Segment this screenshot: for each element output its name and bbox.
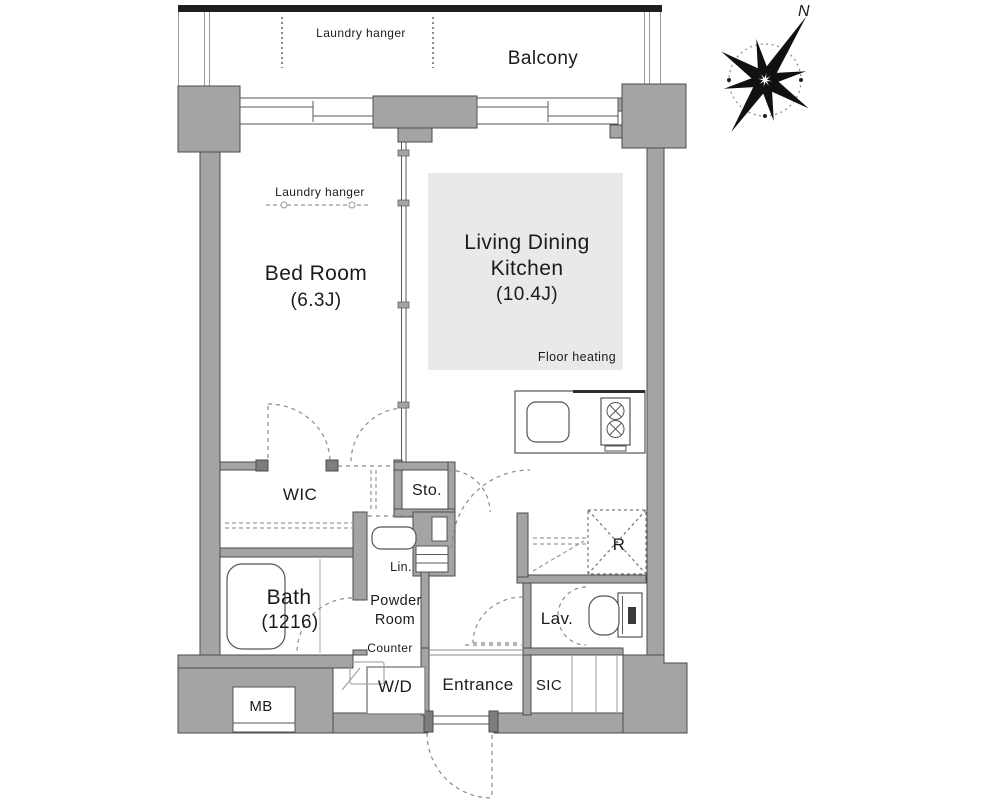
wall-segment bbox=[523, 575, 531, 715]
wall-segment bbox=[178, 655, 353, 668]
door-post bbox=[489, 711, 498, 732]
wall-segment bbox=[398, 128, 432, 142]
washbasin bbox=[372, 527, 416, 549]
linen-label: Lin. bbox=[390, 560, 412, 574]
compass-dot bbox=[799, 78, 803, 82]
ldk-size-label: (10.4J) bbox=[496, 284, 558, 305]
compass-dot bbox=[727, 78, 731, 82]
wall-segment bbox=[333, 713, 428, 733]
entrance-door-arc bbox=[427, 733, 492, 798]
wall-segment bbox=[610, 125, 622, 138]
wall-segment bbox=[421, 572, 429, 655]
wall-segment bbox=[494, 713, 623, 733]
labels: Laundry hanger Balcony Laundry hanger Be… bbox=[249, 26, 625, 715]
balcony-area bbox=[178, 5, 662, 96]
bath-label: Bath bbox=[267, 586, 312, 609]
wall-segment bbox=[353, 512, 367, 600]
kitchen-counter bbox=[515, 391, 645, 453]
bath-size-label: (1216) bbox=[261, 612, 318, 633]
wall-segment bbox=[517, 513, 528, 577]
powder-room-label-line2: Room bbox=[375, 612, 415, 628]
kitchen-sink bbox=[527, 402, 569, 442]
bedroom-ldk-partition bbox=[398, 142, 409, 462]
ldk-label-line2: Kitchen bbox=[491, 257, 564, 280]
door-post bbox=[256, 460, 268, 471]
bedroom-door-arc bbox=[351, 408, 405, 462]
floor-plan: N Laundry hanger Balcony Laundry hanger … bbox=[0, 0, 999, 801]
wall-segment bbox=[622, 84, 686, 148]
wall-segment bbox=[647, 148, 664, 655]
wall-segment bbox=[623, 655, 687, 733]
compass-north-label: N bbox=[798, 3, 810, 20]
bedroom-label: Bed Room bbox=[265, 262, 367, 285]
lavatory-door-arc bbox=[473, 597, 523, 643]
entrance-label: Entrance bbox=[442, 675, 513, 694]
ldk-label-line1: Living Dining bbox=[464, 231, 589, 254]
wic-label: WIC bbox=[283, 485, 317, 504]
washer-dryer-label: W/D bbox=[378, 677, 412, 696]
bedroom-window bbox=[240, 98, 373, 124]
bedroom-laundry-hanger-label: Laundry hanger bbox=[275, 185, 365, 199]
wall-segment bbox=[517, 575, 646, 583]
wall-segment bbox=[523, 648, 623, 655]
kitchen-sliding-door bbox=[533, 538, 586, 571]
counter-label: Counter bbox=[367, 641, 413, 655]
balcony-label: Balcony bbox=[508, 48, 578, 69]
compass-north-arrow bbox=[761, 13, 811, 82]
sliding-door-joint bbox=[398, 200, 409, 206]
bedroom-laundry-hanger bbox=[266, 202, 368, 208]
wall-segment bbox=[178, 86, 240, 152]
building-outline-line bbox=[178, 5, 662, 12]
sliding-door-joint bbox=[398, 150, 409, 156]
powder-room-label-line1: Powder bbox=[370, 593, 422, 609]
wall-segment bbox=[220, 462, 258, 470]
shoe-closet-shelves bbox=[572, 656, 617, 712]
grill bbox=[605, 446, 626, 451]
entrance-step bbox=[429, 645, 523, 655]
refrigerator-label: R bbox=[613, 535, 626, 554]
compass-dot bbox=[763, 114, 767, 118]
wall-segment bbox=[373, 96, 477, 128]
storage-label: Sto. bbox=[412, 482, 442, 499]
entrance-door bbox=[427, 716, 492, 798]
wall-segment bbox=[353, 650, 367, 655]
sliding-door-joint bbox=[398, 402, 409, 408]
wall-segment bbox=[394, 462, 455, 470]
ldk-window bbox=[477, 98, 618, 124]
compass: N bbox=[681, 0, 856, 164]
lavatory-label: Lav. bbox=[541, 609, 573, 628]
sic-label: SIC bbox=[536, 677, 562, 694]
floor-heating-label: Floor heating bbox=[538, 350, 616, 364]
bedroom-size-label: (6.3J) bbox=[291, 290, 342, 311]
meter-box-label: MB bbox=[249, 698, 272, 715]
wic-door-arc bbox=[268, 404, 330, 462]
wall-segment bbox=[200, 152, 220, 655]
sliding-door-joint bbox=[398, 302, 409, 308]
balcony-laundry-hanger-label: Laundry hanger bbox=[316, 26, 406, 40]
wall-segment bbox=[220, 548, 360, 557]
